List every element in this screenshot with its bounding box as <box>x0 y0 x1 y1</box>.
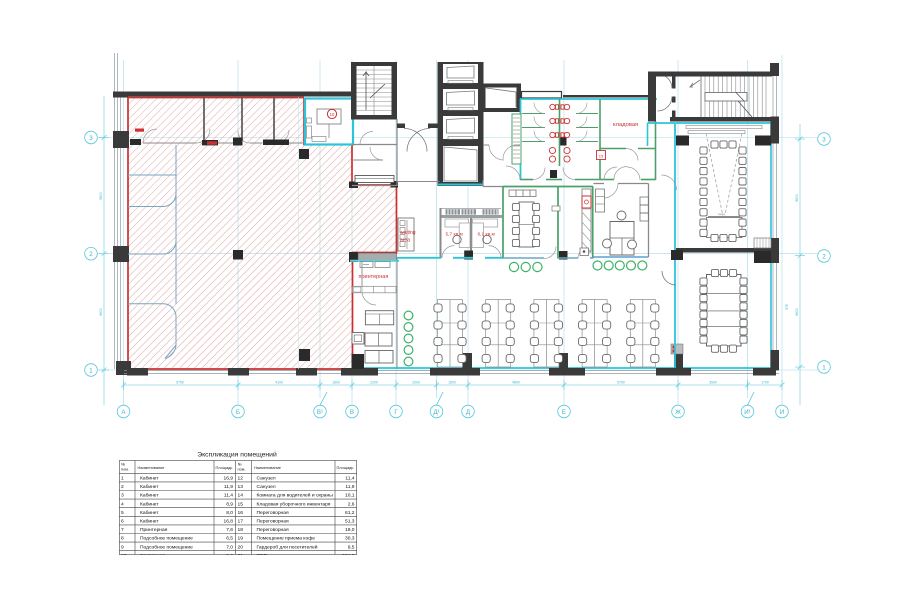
svg-text:7,0: 7,0 <box>226 544 233 550</box>
svg-text:9600: 9600 <box>99 308 103 316</box>
svg-text:Принтерная: Принтерная <box>140 527 168 533</box>
svg-text:Комната для водителей и охраны: Комната для водителей и охраны <box>257 492 334 499</box>
svg-text:6,5: 6,5 <box>226 536 233 542</box>
svg-text:Экспликация помещений: Экспликация помещений <box>197 451 277 459</box>
svg-text:2: 2 <box>89 251 93 258</box>
svg-text:9600: 9600 <box>795 308 799 316</box>
svg-text:2: 2 <box>121 484 124 490</box>
svg-text:3500: 3500 <box>709 381 717 385</box>
svg-text:7: 7 <box>121 527 124 533</box>
svg-text:3: 3 <box>121 493 124 499</box>
svg-text:12: 12 <box>238 476 244 482</box>
svg-text:Кабинет: Кабинет <box>140 484 159 490</box>
svg-text:Кабинет: Кабинет <box>140 510 159 516</box>
svg-text:1700: 1700 <box>761 381 769 385</box>
svg-text:10: 10 <box>330 112 335 117</box>
svg-text:1: 1 <box>121 476 124 482</box>
svg-text:5: 5 <box>121 510 124 516</box>
svg-text:18: 18 <box>238 527 244 533</box>
svg-text:Площадь: Площадь <box>337 465 354 470</box>
svg-text:4: 4 <box>121 501 124 507</box>
svg-text:11,9: 11,9 <box>345 484 354 490</box>
svg-text:9600: 9600 <box>795 194 799 202</box>
svg-text:11,4: 11,4 <box>224 493 233 499</box>
svg-text:Переговорная: Переговорная <box>257 510 289 516</box>
svg-text:19: 19 <box>238 536 244 542</box>
svg-text:576: 576 <box>785 304 789 310</box>
svg-text:И¹: И¹ <box>744 409 751 416</box>
svg-text:В¹: В¹ <box>317 409 323 416</box>
svg-text:Д¹: Д¹ <box>433 409 439 416</box>
svg-text:принтерная: принтерная <box>359 274 389 280</box>
svg-text:Помещение приема кофе: Помещение приема кофе <box>257 536 316 542</box>
svg-text:1600: 1600 <box>332 381 340 385</box>
svg-text:9,5: 9,5 <box>348 544 355 550</box>
svg-text:6,1 кв.м: 6,1 кв.м <box>478 232 495 238</box>
svg-text:14: 14 <box>238 493 244 499</box>
svg-text:7,6: 7,6 <box>226 527 233 533</box>
svg-text:экран: экран <box>718 213 725 216</box>
svg-text:Кабинет: Кабинет <box>140 519 159 525</box>
svg-text:Кабинет: Кабинет <box>140 476 159 482</box>
svg-text:1: 1 <box>89 367 93 374</box>
svg-text:17: 17 <box>238 519 244 525</box>
svg-text:1: 1 <box>822 364 826 371</box>
svg-text:Подсобное помещение: Подсобное помещение <box>140 544 193 550</box>
svg-text:Б: Б <box>236 409 240 416</box>
svg-text:1600: 1600 <box>448 381 456 385</box>
svg-text:2: 2 <box>822 253 826 260</box>
svg-text:Гардероб для посетителей: Гардероб для посетителей <box>257 543 318 550</box>
svg-text:Наименование: Наименование <box>254 465 281 470</box>
svg-text:waiting: waiting <box>400 230 416 236</box>
svg-text:В: В <box>350 409 354 416</box>
svg-text:Е: Е <box>562 409 566 416</box>
svg-text:3: 3 <box>89 135 93 142</box>
svg-text:8,0: 8,0 <box>226 510 233 516</box>
svg-text:3: 3 <box>822 136 826 143</box>
svg-text:19,0: 19,0 <box>345 527 355 533</box>
svg-text:пом.: пом. <box>238 467 246 472</box>
svg-text:И: И <box>780 409 784 416</box>
svg-text:кладовая: кладовая <box>613 122 638 128</box>
svg-text:Переговорная: Переговорная <box>257 519 289 525</box>
svg-text:16: 16 <box>238 510 244 516</box>
svg-text:5750: 5750 <box>176 381 184 385</box>
svg-text:2000: 2000 <box>412 381 420 385</box>
svg-text:5700: 5700 <box>617 381 625 385</box>
svg-text:Санузел: Санузел <box>257 476 276 482</box>
svg-text:Кабинет: Кабинет <box>140 493 159 499</box>
svg-text:Санузел: Санузел <box>257 484 276 490</box>
svg-text:10,1: 10,1 <box>345 493 355 499</box>
svg-text:пом.: пом. <box>121 467 129 472</box>
svg-text:9: 9 <box>121 544 124 550</box>
svg-text:Наименование: Наименование <box>138 465 165 470</box>
svg-text:15: 15 <box>238 501 244 507</box>
svg-text:Кабинет: Кабинет <box>140 501 159 507</box>
svg-text:16,8: 16,8 <box>223 519 233 525</box>
svg-text:4800: 4800 <box>512 381 520 385</box>
svg-text:11,9: 11,9 <box>224 484 233 490</box>
svg-text:Переговорная: Переговорная <box>257 527 289 533</box>
svg-text:Подсобное помещение: Подсобное помещение <box>140 536 193 542</box>
svg-text:30,3: 30,3 <box>345 536 355 542</box>
svg-text:16,9: 16,9 <box>223 476 233 482</box>
svg-text:13: 13 <box>238 484 244 490</box>
svg-text:2200: 2200 <box>370 381 378 385</box>
svg-text:20: 20 <box>238 544 244 550</box>
svg-text:6: 6 <box>121 519 124 525</box>
svg-text:Кладовая уборочного инвентаря: Кладовая уборочного инвентаря <box>257 501 331 507</box>
svg-text:5,7 кв.м: 5,7 кв.м <box>446 232 463 238</box>
svg-text:51,3: 51,3 <box>345 519 355 525</box>
svg-text:2,6: 2,6 <box>348 501 355 507</box>
svg-text:11,4: 11,4 <box>345 476 354 482</box>
svg-text:15: 15 <box>599 154 604 159</box>
svg-text:9600: 9600 <box>99 192 103 200</box>
svg-text:61,2: 61,2 <box>345 510 355 516</box>
svg-text:8,9: 8,9 <box>226 501 233 507</box>
svg-text:Площадь: Площадь <box>216 465 233 470</box>
svg-text:4100: 4100 <box>275 381 283 385</box>
svg-text:Ж: Ж <box>675 409 681 416</box>
svg-text:area: area <box>400 238 410 244</box>
svg-text:8: 8 <box>121 536 124 542</box>
